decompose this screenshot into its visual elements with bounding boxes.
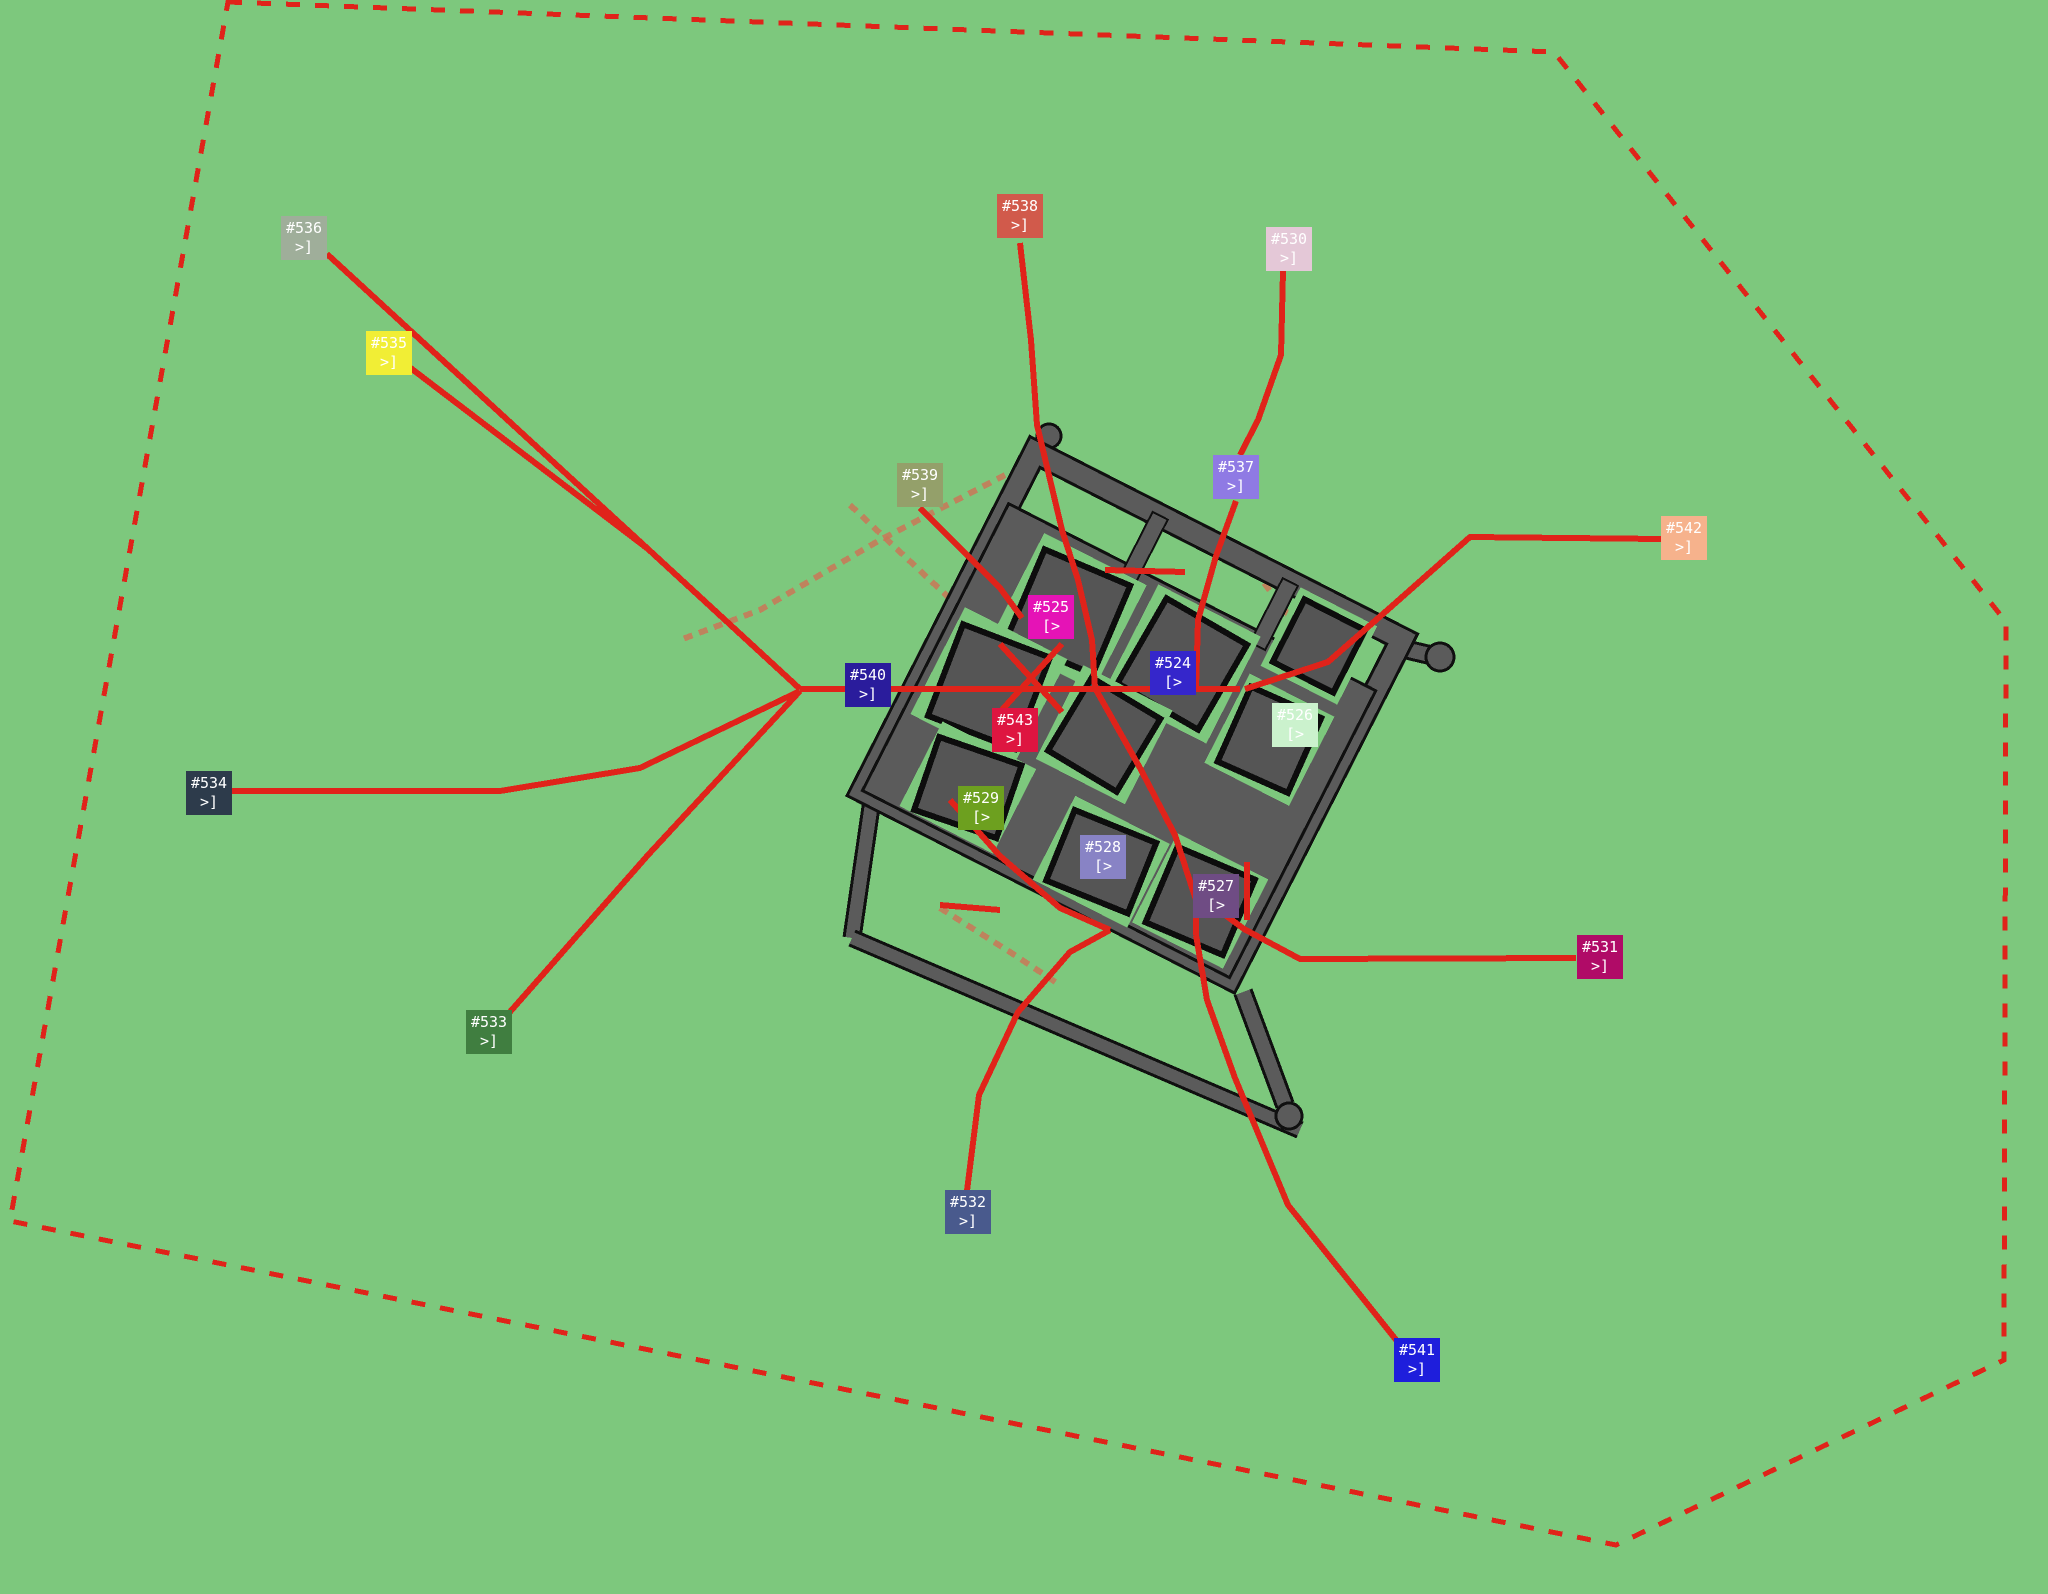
marker-id-label: #540	[850, 666, 886, 685]
marker-direction-label: >]	[1591, 957, 1609, 976]
marker-id-label: #524	[1155, 654, 1191, 673]
route-530	[1240, 271, 1283, 455]
game-world-map: #536>]#535>]#538>]#530>]#537>]#539>]#542…	[0, 0, 2048, 1594]
marker-534[interactable]: #534>]	[186, 771, 232, 815]
road-knob	[1426, 643, 1454, 671]
marker-direction-label: >]	[480, 1032, 498, 1051]
marker-id-label: #538	[1002, 197, 1038, 216]
marker-id-label: #529	[963, 789, 999, 808]
marker-direction-label: [>	[1207, 896, 1225, 915]
marker-id-label: #537	[1218, 458, 1254, 477]
road-knob	[1276, 1103, 1302, 1129]
marker-direction-label: [>	[1094, 857, 1112, 876]
marker-direction-label: >]	[1408, 1360, 1426, 1379]
marker-id-label: #533	[471, 1013, 507, 1032]
marker-524[interactable]: #524[>	[1150, 651, 1196, 695]
marker-id-label: #543	[997, 711, 1033, 730]
marker-542[interactable]: #542>]	[1661, 516, 1707, 560]
marker-direction-label: >]	[911, 485, 929, 504]
marker-id-label: #530	[1271, 230, 1307, 249]
marker-id-label: #541	[1399, 1341, 1435, 1360]
marker-direction-label: >]	[1280, 249, 1298, 268]
marker-direction-label: [>	[1042, 617, 1060, 636]
marker-id-label: #531	[1582, 938, 1618, 957]
marker-id-label: #539	[902, 466, 938, 485]
route-inner-529	[940, 905, 1000, 910]
marker-528[interactable]: #528[>	[1080, 835, 1126, 879]
marker-direction-label: >]	[295, 238, 313, 257]
marker-id-label: #534	[191, 774, 227, 793]
marker-direction-label: >]	[1675, 538, 1693, 557]
marker-direction-label: >]	[1006, 730, 1024, 749]
marker-535[interactable]: #535>]	[366, 331, 412, 375]
route-536	[327, 254, 800, 689]
marker-540[interactable]: #540>]	[845, 663, 891, 707]
marker-537[interactable]: #537>]	[1213, 455, 1259, 499]
trail-south	[940, 908, 1060, 985]
route-535	[408, 366, 648, 549]
marker-direction-label: >]	[380, 353, 398, 372]
marker-527[interactable]: #527[>	[1193, 874, 1239, 918]
marker-id-label: #535	[371, 334, 407, 353]
marker-539[interactable]: #539>]	[897, 463, 943, 507]
marker-536[interactable]: #536>]	[281, 216, 327, 260]
marker-532[interactable]: #532>]	[945, 1190, 991, 1234]
marker-525[interactable]: #525[>	[1028, 595, 1074, 639]
route-534	[232, 691, 800, 791]
marker-530[interactable]: #530>]	[1266, 227, 1312, 271]
marker-id-label: #528	[1085, 838, 1121, 857]
marker-id-label: #526	[1277, 706, 1313, 725]
marker-id-label: #542	[1666, 519, 1702, 538]
marker-541[interactable]: #541>]	[1394, 1338, 1440, 1382]
marker-id-label: #536	[286, 219, 322, 238]
marker-526[interactable]: #526[>	[1272, 703, 1318, 747]
marker-direction-label: >]	[859, 685, 877, 704]
marker-direction-label: [>	[1164, 673, 1182, 692]
marker-531[interactable]: #531>]	[1577, 935, 1623, 979]
route-inner-band	[1105, 570, 1185, 572]
marker-direction-label: [>	[1286, 725, 1304, 744]
marker-543[interactable]: #543>]	[992, 708, 1038, 752]
marker-id-label: #532	[950, 1193, 986, 1212]
marker-direction-label: >]	[1227, 477, 1245, 496]
marker-direction-label: >]	[200, 793, 218, 812]
road-bar	[1243, 992, 1285, 1105]
route-533	[509, 691, 800, 1013]
marker-direction-label: [>	[972, 808, 990, 827]
marker-direction-label: >]	[959, 1212, 977, 1231]
marker-533[interactable]: #533>]	[466, 1010, 512, 1054]
marker-529[interactable]: #529[>	[958, 786, 1004, 830]
marker-id-label: #525	[1033, 598, 1069, 617]
marker-direction-label: >]	[1011, 216, 1029, 235]
marker-id-label: #527	[1198, 877, 1234, 896]
marker-538[interactable]: #538>]	[997, 194, 1043, 238]
